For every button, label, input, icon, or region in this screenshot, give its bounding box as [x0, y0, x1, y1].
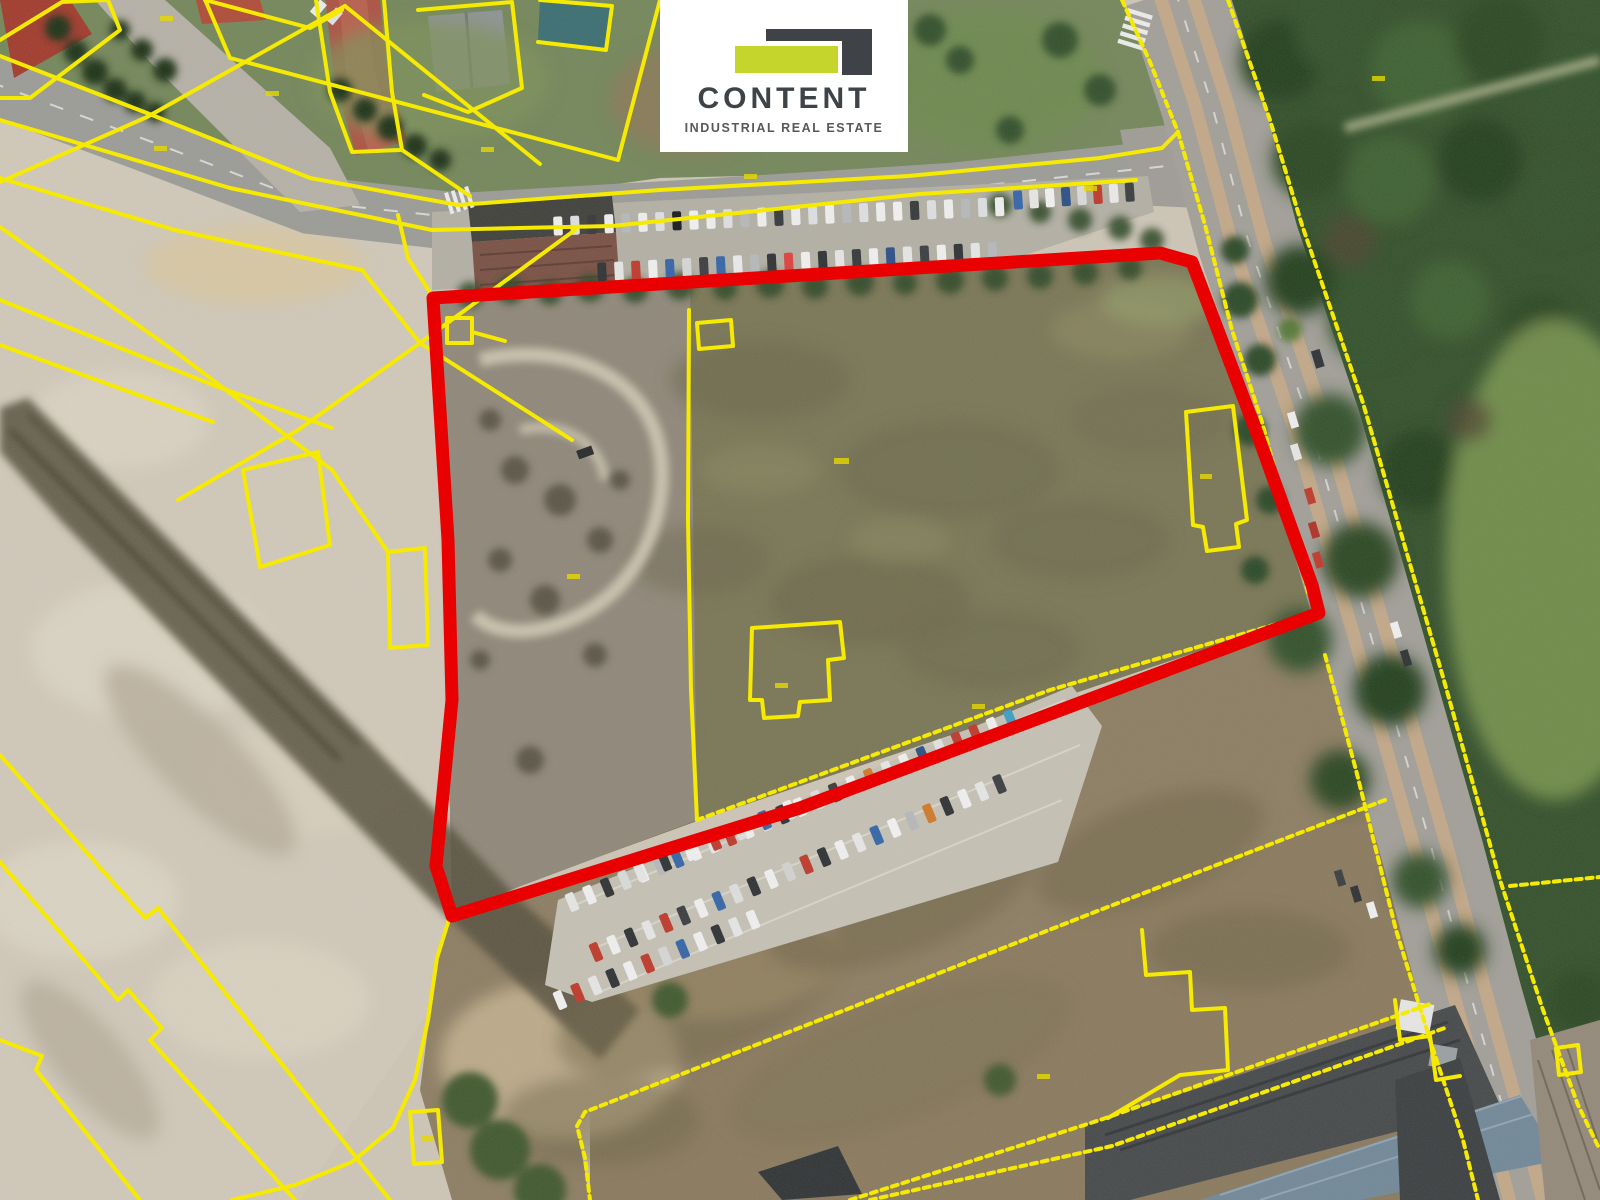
- parcel-number-blob: [1037, 1074, 1050, 1079]
- parcel-number-blob: [1372, 76, 1385, 81]
- parcel-number-blob: [744, 174, 757, 179]
- aerial-map: [0, 0, 1600, 1200]
- parcel-number-blob: [160, 16, 173, 21]
- logo-mark-lime-shape: [735, 46, 838, 73]
- parcel-number-blob: [154, 146, 167, 151]
- parcel-number-blob: [567, 574, 580, 579]
- parcel-number-blob: [421, 1136, 433, 1141]
- parcel-number-blob: [775, 683, 788, 688]
- parcel-number-blob: [972, 704, 985, 709]
- terrain-layer: [0, 0, 1600, 1200]
- parcel-number-blob: [266, 91, 279, 96]
- parcel-number-blob: [481, 147, 494, 152]
- parcel-number-blob: [1200, 474, 1212, 479]
- aerial-map-screenshot: CONTENT INDUSTRIAL REAL ESTATE: [0, 0, 1600, 1200]
- content-logo-icon: [660, 0, 908, 80]
- logo-card: CONTENT INDUSTRIAL REAL ESTATE: [660, 0, 908, 152]
- parcel-number-blob: [1084, 186, 1097, 191]
- parcel-number-blob: [834, 458, 849, 464]
- logo-title: CONTENT: [660, 84, 908, 114]
- logo-subtitle: INDUSTRIAL REAL ESTATE: [660, 121, 908, 135]
